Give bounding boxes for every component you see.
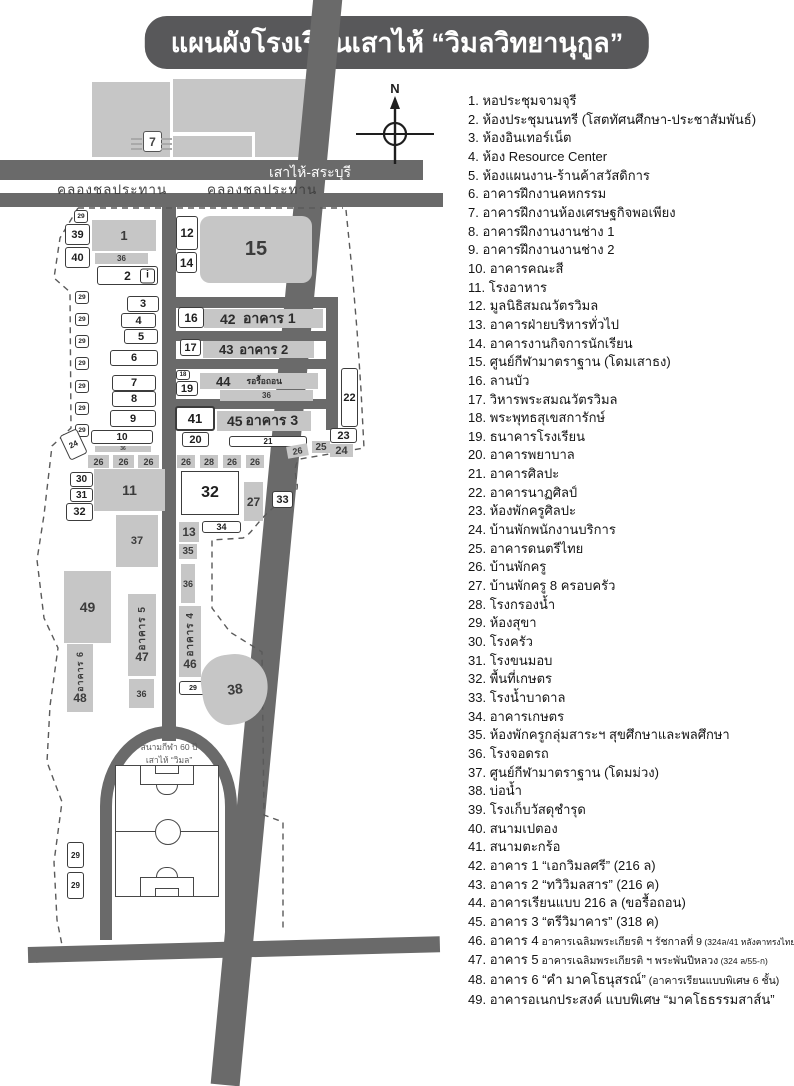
building-17: 17 bbox=[180, 339, 201, 356]
building-5-vertical-label: อาคาร 5 bbox=[135, 606, 150, 651]
school-map-canvas: แผนผังโรงเรียนเสาไห้ “วิมลวิทยานุกูล” 7 … bbox=[0, 0, 794, 1024]
building-18: 18 bbox=[176, 370, 190, 380]
building-31: 31 bbox=[70, 488, 93, 502]
building-29: 29 bbox=[67, 842, 84, 868]
building-43-number: 43 bbox=[219, 342, 233, 357]
legend-item-10: 10. อาคารคณะสี bbox=[468, 260, 792, 279]
building-26: 26 bbox=[286, 443, 309, 458]
building-29: 29 bbox=[74, 210, 88, 223]
building-36: 36 bbox=[181, 564, 195, 603]
legend-item-44: 44. อาคารเรียนแบบ 216 ล (ขอรื้อถอน) bbox=[468, 894, 792, 913]
legend-item-4: 4. ห้อง Resource Center bbox=[468, 148, 792, 167]
building-32: 32 bbox=[181, 471, 239, 515]
canal-label-right: คลองชลประทาน bbox=[207, 178, 317, 200]
legend-item-37: 37. ศูนย์กีฬามาตราฐาน (โดมม่วง) bbox=[468, 764, 792, 783]
penalty-arc-top bbox=[156, 785, 178, 795]
legend-item-11: 11. โรงอาหาร bbox=[468, 279, 792, 298]
legend-item-9: 9. อาคารฝึกงานงานช่าง 2 bbox=[468, 241, 792, 260]
building-10: 10 bbox=[91, 430, 153, 444]
field-center-circle bbox=[155, 819, 181, 845]
building-28: 28 bbox=[200, 455, 218, 468]
legend-item-38: 38. บ่อน้ำ bbox=[468, 782, 792, 801]
building-36: 36 bbox=[95, 253, 148, 264]
building-36: 36 bbox=[95, 446, 151, 452]
building-42-row: 42 อาคาร 1 bbox=[204, 309, 323, 328]
legend-item-41: 41. สนามตะกร้อ bbox=[468, 838, 792, 857]
legend-item-14: 14. อาคารงานกิจการนักเรียน bbox=[468, 335, 792, 354]
building-45-name: อาคาร 3 bbox=[245, 410, 308, 432]
building-34: 34 bbox=[202, 521, 241, 533]
legend-item-31: 31. โรงขนมอบ bbox=[468, 652, 792, 671]
legend-item-23: 23. ห้องพักครูศิลปะ bbox=[468, 502, 792, 521]
legend-item-22: 22. อาคารนาฏศิลป์ bbox=[468, 484, 792, 503]
legend-item-33: 33. โรงน้ำบาดาล bbox=[468, 689, 792, 708]
building-29: 29 bbox=[75, 357, 89, 370]
legend-item-26: 26. บ้านพักครู bbox=[468, 558, 792, 577]
building-2-label: 2 bbox=[124, 269, 131, 283]
legend-item-24: 24. บ้านพักพนักงานบริการ bbox=[468, 521, 792, 540]
legend-item-40: 40. สนามเปตอง bbox=[468, 820, 792, 839]
building-29: 29 bbox=[67, 872, 84, 899]
legend-item-1: 1. หอประชุมจามจุรี bbox=[468, 92, 792, 111]
legend-item-5: 5. ห้องแผนงาน-ร้านค้าสวัสดิการ bbox=[468, 167, 792, 186]
legend-list: 1. หอประชุมจามจุรี2. ห้องประชุมนนทรี (โส… bbox=[468, 92, 792, 1009]
legend-item-42: 42. อาคาร 1 “เอกวิมลศรี” (216 ล) bbox=[468, 857, 792, 876]
building-4-vertical-label: อาคาร 4 bbox=[183, 612, 198, 657]
legend-item-19: 19. ธนาคารโรงเรียน bbox=[468, 428, 792, 447]
building-49: 49 bbox=[64, 571, 111, 643]
svg-text:N: N bbox=[390, 82, 399, 96]
building-26: 26 bbox=[223, 455, 241, 468]
penalty-arc-bottom bbox=[156, 867, 178, 877]
legend-item-12: 12. มูลนิธิสมณวัตรวิมล bbox=[468, 297, 792, 316]
legend-item-34: 34. อาคารเกษตร bbox=[468, 708, 792, 727]
building-25: 25 bbox=[312, 441, 330, 453]
convenience-store-icon: 7 bbox=[143, 131, 162, 152]
legend-item-18: 18. พระพุทธสุเขสการักษ์ bbox=[468, 409, 792, 428]
building-30: 30 bbox=[70, 472, 93, 487]
building-36: 36 bbox=[129, 679, 154, 708]
building-12: 12 bbox=[176, 216, 198, 250]
building-26: 26 bbox=[177, 455, 195, 468]
building-20: 20 bbox=[182, 432, 209, 447]
building-45-row: 45 อาคาร 3 bbox=[217, 411, 311, 431]
building-44-name: รอรื้อถอน bbox=[247, 374, 302, 388]
goal-box-bottom-inner bbox=[155, 888, 179, 897]
building-14: 14 bbox=[176, 252, 197, 273]
building-48-number: 48 bbox=[73, 691, 86, 705]
legend-item-32: 32. พื้นที่เกษตร bbox=[468, 670, 792, 689]
building-33: 33 bbox=[272, 491, 293, 508]
page-title: แผนผังโรงเรียนเสาไห้ “วิมลวิทยานุกูล” bbox=[145, 16, 649, 69]
building-6-vertical-label: อาคาร 6 bbox=[73, 651, 87, 692]
building-48-akan6: อาคาร 6 48 bbox=[67, 644, 93, 712]
legend-item-35: 35. ห้องพักครูกลุ่มสาระฯ สุขศึกษาและพลศึ… bbox=[468, 726, 792, 745]
building-26: 26 bbox=[246, 455, 264, 468]
football-field bbox=[115, 765, 219, 897]
building-19: 19 bbox=[176, 381, 198, 396]
building-29: 29 bbox=[75, 291, 89, 304]
legend-item-36: 36. โรงจอดรถ bbox=[468, 745, 792, 764]
legend-item-16: 16. ลานบัว bbox=[468, 372, 792, 391]
building-2: 2 i bbox=[97, 266, 158, 285]
building-5: 5 bbox=[124, 329, 158, 344]
building-26: 26 bbox=[88, 455, 109, 468]
building-35: 35 bbox=[179, 544, 197, 559]
building-32: 32 bbox=[66, 503, 93, 521]
internal-road bbox=[176, 359, 331, 369]
building-45-number: 45 bbox=[227, 413, 243, 429]
building-6: 6 bbox=[110, 350, 158, 366]
legend-item-39: 39. โรงเก็บวัสดุชำรุด bbox=[468, 801, 792, 820]
legend-item-25: 25. อาคารดนตรีไทย bbox=[468, 540, 792, 559]
building-13: 13 bbox=[179, 522, 199, 542]
legend-item-6: 6. อาคารฝึกงานคหกรรม bbox=[468, 185, 792, 204]
legend-item-17: 17. วิหารพระสมณวัตรวิมล bbox=[468, 391, 792, 410]
legend-item-2: 2. ห้องประชุมนนทรี (โสตทัศนศึกษา-ประชาสั… bbox=[468, 111, 792, 130]
building-40: 40 bbox=[65, 247, 90, 268]
legend-item-30: 30. โรงครัว bbox=[468, 633, 792, 652]
building-44-row: 44 รอรื้อถอน bbox=[200, 373, 318, 389]
legend-item-47: 47. อาคาร 5 อาคารเฉลิมพระเกียรติ ฯ พระพั… bbox=[468, 951, 792, 971]
building-46-number: 46 bbox=[183, 657, 196, 671]
legend-item-13: 13. อาคารฝ่ายบริหารทั่วไป bbox=[468, 316, 792, 335]
legend-item-49: 49. อาคารอเนกประสงค์ แบบพิเศษ “มาคโธธรรม… bbox=[468, 991, 792, 1010]
building-29: 29 bbox=[75, 402, 89, 415]
building-29: 29 bbox=[75, 335, 89, 348]
building-44-number: 44 bbox=[216, 374, 230, 389]
building-8: 8 bbox=[112, 391, 156, 407]
info-icon: i bbox=[140, 268, 155, 283]
building-36: 36 bbox=[220, 390, 313, 401]
building-1: 1 bbox=[92, 220, 156, 251]
building-42-number: 42 bbox=[220, 311, 236, 327]
building-3: 3 bbox=[127, 296, 159, 312]
legend-item-29: 29. ห้องสุขา bbox=[468, 614, 792, 633]
store-stripe-decoration bbox=[161, 136, 172, 150]
building-39: 39 bbox=[65, 224, 90, 245]
legend-item-48: 48. อาคาร 6 “คำ มาคโธนุสรณ์” (อาคารเรียน… bbox=[468, 971, 792, 991]
legend-item-8: 8. อาคารฝึกงานงานช่าง 1 bbox=[468, 223, 792, 242]
building-26: 26 bbox=[138, 455, 159, 468]
building-7: 7 bbox=[112, 375, 156, 391]
building-43-row: 43 อาคาร 2 bbox=[203, 341, 314, 358]
building-9: 9 bbox=[110, 410, 156, 427]
legend-item-46: 46. อาคาร 4 อาคารเฉลิมพระเกียรติ ฯ รัชกา… bbox=[468, 932, 792, 952]
building-46-akan4: อาคาร 4 46 bbox=[179, 606, 201, 677]
building-42-name: อาคาร 1 bbox=[243, 308, 316, 330]
building-29: 29 bbox=[75, 313, 89, 326]
legend-item-43: 43. อาคาร 2 “ทวิวิมลสาร” (216 ค) bbox=[468, 876, 792, 895]
legend-item-3: 3. ห้องอินเทอร์เน็ต bbox=[468, 129, 792, 148]
legend-item-27: 27. บ้านพักครู 8 ครอบครัว bbox=[468, 577, 792, 596]
building-47-akan5: อาคาร 5 47 bbox=[128, 594, 156, 676]
store-stripe-decoration bbox=[131, 136, 142, 150]
stadium-label-1: สนามกีฬา 60 ปี bbox=[104, 740, 234, 754]
goal-box-top-inner bbox=[155, 765, 179, 774]
building-43-name: อาคาร 2 bbox=[239, 339, 308, 360]
legend-item-7: 7. อาคารฝึกงานห้องเศรษฐกิจพอเพียง bbox=[468, 204, 792, 223]
legend-item-28: 28. โรงกรองน้ำ bbox=[468, 596, 792, 615]
building-16: 16 bbox=[178, 307, 204, 328]
internal-road bbox=[326, 297, 338, 430]
building-29: 29 bbox=[75, 380, 89, 393]
building-37: 37 bbox=[116, 515, 158, 567]
building-11: 11 bbox=[94, 469, 165, 511]
building-22: 22 bbox=[341, 368, 358, 427]
canal-label-left: คลองชลประทาน bbox=[57, 178, 167, 200]
building-27: 27 bbox=[244, 482, 263, 521]
outside-building bbox=[173, 136, 252, 157]
legend-item-45: 45. อาคาร 3 “ตรีวิมาคาร” (318 ค) bbox=[468, 913, 792, 932]
building-24: 24 bbox=[330, 444, 353, 457]
legend-item-15: 15. ศูนย์กีฬามาตราฐาน (โดมเสาธง) bbox=[468, 353, 792, 372]
legend-item-21: 21. อาคารศิลปะ bbox=[468, 465, 792, 484]
building-23: 23 bbox=[330, 428, 357, 443]
building-4: 4 bbox=[121, 313, 156, 328]
building-41: 41 bbox=[175, 406, 215, 431]
building-47-number: 47 bbox=[135, 650, 148, 664]
legend-item-20: 20. อาคารพยาบาล bbox=[468, 446, 792, 465]
building-26: 26 bbox=[113, 455, 134, 468]
building-15: 15 bbox=[200, 216, 312, 283]
